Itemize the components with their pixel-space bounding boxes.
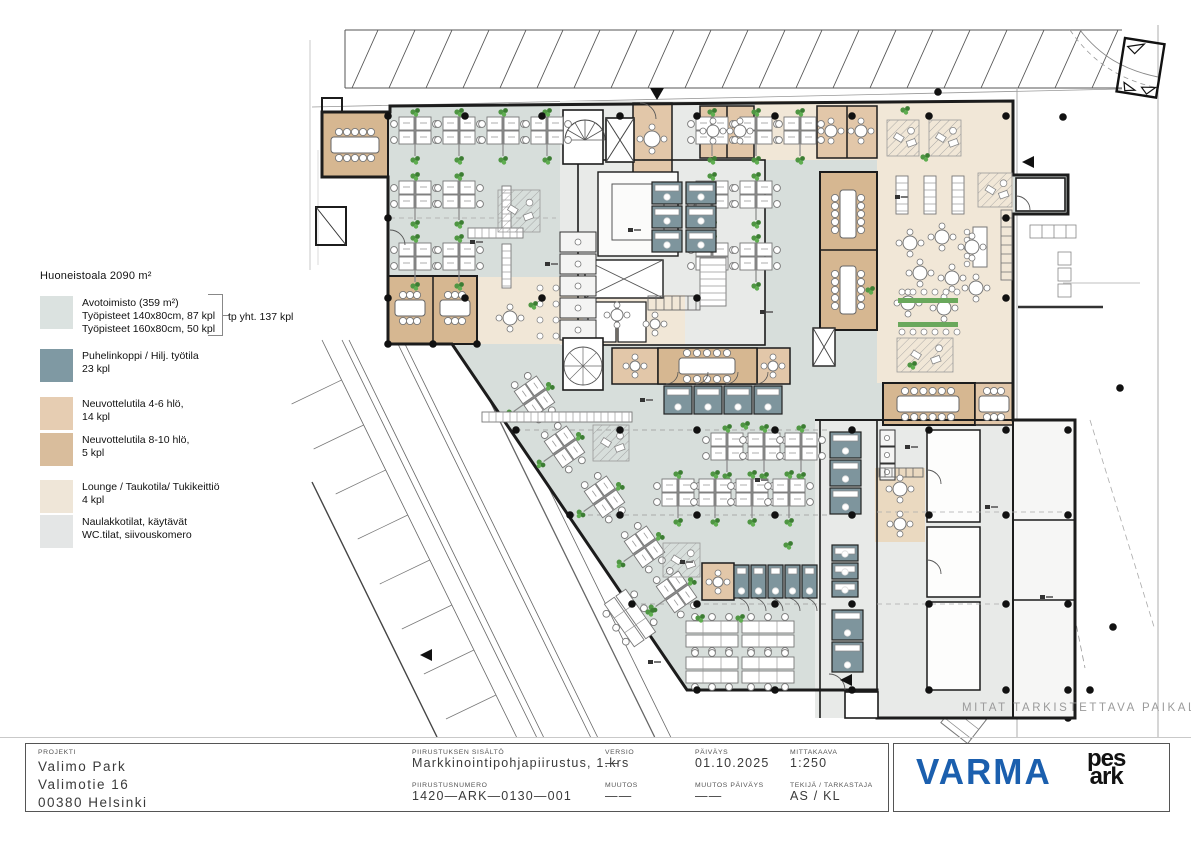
legend-label: Työpisteet 160x80cm, 50 kpl bbox=[82, 323, 215, 336]
project-street: Valimotie 16 bbox=[38, 776, 148, 794]
field-label: MUUTOS bbox=[605, 782, 638, 789]
plan-watermark: MITAT TARKISTETTAVA PAIKALTA bbox=[962, 702, 1191, 714]
legend-label: Neuvottelutila 4-6 hlö, bbox=[82, 398, 184, 411]
legend-item-meeting-810: Neuvottelutila 8-10 hlö, 5 kpl bbox=[40, 433, 300, 466]
legend-annotation: tp yht. 137 kpl bbox=[228, 311, 293, 323]
sheet-divider bbox=[0, 737, 1191, 738]
drawing-sheet: MITAT TARKISTETTAVA PAIKALTA Huoneistoal… bbox=[0, 0, 1191, 842]
legend-swatch bbox=[40, 296, 73, 329]
legend-item-corridors: Naulakkotilat, käytävät WC.tilat, siivou… bbox=[40, 515, 300, 548]
legend-swatch bbox=[40, 480, 73, 513]
field-label: VERSIO bbox=[605, 749, 634, 756]
legend-label: Avotoimisto (359 m²) bbox=[82, 297, 215, 310]
pes-ark-logo-bottom: ark bbox=[1087, 768, 1125, 786]
legend-label: 4 kpl bbox=[82, 494, 220, 507]
legend-swatch bbox=[40, 349, 73, 382]
field-value: AS / KL bbox=[790, 789, 873, 803]
field-value: —— bbox=[695, 789, 764, 803]
field-label: PIIRUSTUKSEN SISÄLTÖ bbox=[412, 749, 629, 756]
legend: Huoneistoala 2090 m² Avotoimisto (359 m²… bbox=[40, 270, 300, 561]
legend-label: 5 kpl bbox=[82, 447, 189, 460]
field-label: TEKIJÄ / TARKASTAJA bbox=[790, 782, 873, 789]
field-value: — bbox=[605, 756, 634, 770]
legend-label: Työpisteet 140x80cm, 87 kpl bbox=[82, 310, 215, 323]
field-value: 1420—ARK—0130—001 bbox=[412, 789, 572, 803]
project-label: PROJEKTI bbox=[38, 749, 76, 756]
field-value: 01.10.2025 bbox=[695, 756, 770, 770]
legend-label: Puhelinkoppi / Hilj. työtila bbox=[82, 350, 199, 363]
legend-label: Neuvottelutila 8-10 hlö, bbox=[82, 434, 189, 447]
field-value: —— bbox=[605, 789, 638, 803]
legend-label: 23 kpl bbox=[82, 363, 199, 376]
legend-title: Huoneistoala 2090 m² bbox=[40, 270, 300, 282]
legend-item-meeting-46: Neuvottelutila 4-6 hlö, 14 kpl bbox=[40, 397, 300, 430]
field-label: PIIRUSTUSNUMERO bbox=[412, 782, 572, 789]
legend-label: Naulakkotilat, käytävät bbox=[82, 516, 192, 529]
legend-bracket bbox=[208, 294, 223, 336]
titleblock-fields: PIIRUSTUKSEN SISÄLTÖ Markkinointipohjapi… bbox=[401, 743, 889, 812]
legend-item-lounge: Lounge / Taukotila/ Tukikeittiö 4 kpl bbox=[40, 480, 300, 513]
field-label: MITTAKAAVA bbox=[790, 749, 838, 756]
project-name: Valimo Park bbox=[38, 758, 148, 776]
varma-logo: VARMA bbox=[916, 753, 1052, 794]
legend-item-open-office: Avotoimisto (359 m²) Työpisteet 140x80cm… bbox=[40, 296, 300, 336]
legend-label: WC.tilat, siivouskomero bbox=[82, 529, 192, 542]
titleblock-logos: VARMA pes ark bbox=[893, 743, 1170, 812]
legend-label: Lounge / Taukotila/ Tukikeittiö bbox=[82, 481, 220, 494]
titleblock-project: PROJEKTI Valimo Park Valimotie 16 00380 … bbox=[25, 743, 403, 812]
legend-item-phone-booth: Puhelinkoppi / Hilj. työtila 23 kpl bbox=[40, 349, 300, 382]
field-value: Markkinointipohjapiirustus, 1.krs bbox=[412, 756, 629, 770]
field-value: 1:250 bbox=[790, 756, 838, 770]
field-label: MUUTOS PÄIVÄYS bbox=[695, 782, 764, 789]
legend-swatch bbox=[40, 515, 73, 548]
pes-ark-logo: pes ark bbox=[1087, 750, 1125, 786]
project-city: 00380 Helsinki bbox=[38, 794, 148, 812]
legend-swatch bbox=[40, 433, 73, 466]
field-label: PÄIVÄYS bbox=[695, 749, 770, 756]
legend-label: 14 kpl bbox=[82, 411, 184, 424]
legend-swatch bbox=[40, 397, 73, 430]
